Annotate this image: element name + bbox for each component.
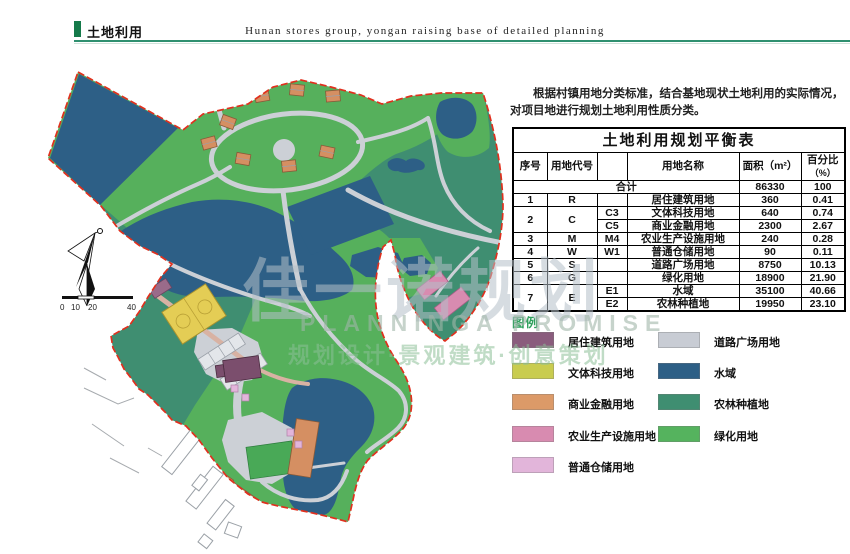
- legend-swatch-warehouse: [512, 457, 554, 473]
- table-row: 1R 居住建筑用地3600.41: [513, 194, 845, 207]
- table-row: 3MM4 农业生产设施用地2400.28: [513, 233, 845, 246]
- legend-swatch-road: [658, 332, 700, 348]
- table-row: 4WW1 普通仓储用地900.11: [513, 246, 845, 259]
- legend-title: 图例: [512, 312, 539, 331]
- table-total-row: 合计 86330 100: [513, 181, 845, 194]
- legend-swatch-greenery: [658, 426, 700, 442]
- svg-text:40: 40: [127, 303, 136, 312]
- table-row: 2CC3 文体科技用地6400.74: [513, 207, 845, 220]
- svg-text:0: 0: [60, 303, 65, 312]
- svg-text:20: 20: [88, 303, 97, 312]
- table-row: 6G 绿化用地1890021.90: [513, 272, 845, 285]
- table-row: 7EE1 水域3510040.66: [513, 285, 845, 298]
- legend-swatch-farmland: [658, 394, 700, 410]
- legend-swatch-water: [658, 363, 700, 379]
- compass-icon: [68, 229, 103, 307]
- svg-text:10: 10: [71, 303, 80, 312]
- legend-swatch-agriculture: [512, 426, 554, 442]
- table-row: 5S 道路广场用地875010.13: [513, 259, 845, 272]
- land-use-balance-table: 土地利用规划平衡表 序号 用地代号 用地名称 面积（m²） 百分比（%） 合计 …: [512, 127, 846, 312]
- table-title: 土地利用规划平衡表: [513, 128, 845, 153]
- legend-swatch-residential: [512, 332, 554, 348]
- scale-bar: 0 10 20 40: [60, 296, 136, 312]
- intro-paragraph: 根据村镇用地分类标准，结合基地现状土地利用的实际情况，对项目地进行规划土地利用性…: [510, 86, 844, 120]
- legend-swatch-culture: [512, 363, 554, 379]
- legend-swatch-commerce: [512, 394, 554, 410]
- table-header-row: 序号 用地代号 用地名称 面积（m²） 百分比（%）: [513, 153, 845, 181]
